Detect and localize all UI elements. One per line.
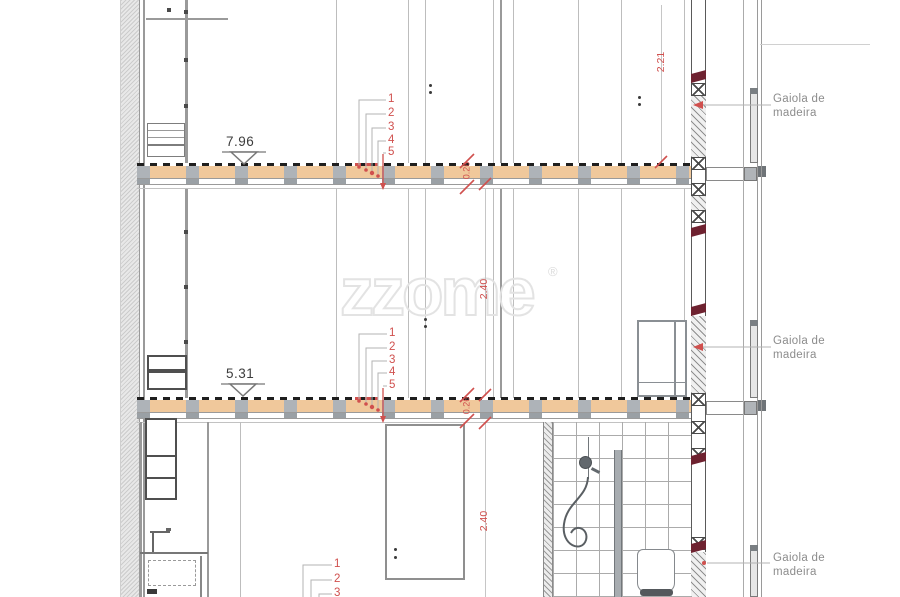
door-leaf-line	[425, 0, 426, 163]
right-wall-line	[761, 0, 762, 597]
column-joint-x	[691, 393, 706, 406]
gaiola-label-line2: madeira	[773, 106, 825, 120]
right-beam-block-upper	[744, 167, 757, 181]
callout-upper-3: 3	[388, 122, 394, 133]
partition-wall	[500, 0, 502, 163]
cabinet-shelf-line	[146, 477, 176, 479]
level-label-upper: 7.96	[226, 134, 254, 149]
slab-red-mark	[355, 163, 378, 166]
column-joint-x	[691, 448, 706, 461]
wall-board	[750, 88, 758, 163]
column-hatch	[691, 96, 706, 157]
wall-tick	[184, 230, 188, 234]
partition-line	[336, 188, 337, 398]
right-wall-line	[743, 0, 744, 597]
bottom-partition-line	[240, 422, 241, 597]
right-beam-block-lower	[744, 401, 757, 415]
bathroom-wall-hatch	[543, 422, 553, 597]
faucet-riser	[152, 531, 154, 552]
toilet-seat	[640, 589, 673, 596]
callout-lower-4: 4	[389, 367, 395, 378]
bottom-partition	[207, 422, 209, 597]
slab-ceiling-line	[137, 184, 691, 189]
door-handle-dot	[638, 96, 641, 99]
bottom-wall-line	[140, 422, 142, 597]
wall-tick	[184, 10, 188, 14]
door-handle-dot	[638, 103, 641, 106]
gaiola-label-line2: madeira	[773, 565, 825, 579]
gaiola-label-top: Gaiola de madeira	[773, 92, 825, 120]
wall-tick	[184, 340, 188, 344]
partition-line	[513, 0, 514, 163]
column-joint-x	[691, 157, 706, 170]
cabinet-side	[200, 556, 202, 597]
wall-board-cap	[750, 88, 758, 94]
column-hatch	[691, 552, 706, 597]
shower-panel	[614, 450, 622, 597]
partition-line	[336, 0, 337, 163]
gaiola-label-line1: Gaiola de	[773, 334, 825, 348]
watermark: zzome	[340, 253, 533, 331]
callout-upper-4: 4	[388, 135, 394, 146]
partition-line	[408, 0, 409, 163]
dim-2-40-bottom: 2.40	[478, 506, 490, 536]
left-wall-tie-beam	[146, 18, 228, 20]
shelf-upper	[147, 123, 185, 145]
door-handle-dot	[429, 91, 432, 94]
gaiola-label-line1: Gaiola de	[773, 92, 825, 106]
floor-slab-upper	[137, 163, 691, 189]
gaiola-label-line2: madeira	[773, 348, 825, 362]
wall-board-cap	[750, 320, 758, 326]
callout-bottom-2: 2	[334, 574, 340, 585]
column-hatch	[691, 196, 706, 210]
door	[385, 424, 465, 580]
gaiola-label-line1: Gaiola de	[773, 551, 825, 565]
dim-2-21: 2.21	[655, 47, 667, 77]
wall-tick	[167, 8, 171, 12]
wall-tick	[184, 285, 188, 289]
wall-board	[750, 545, 758, 597]
callout-bottom-1: 1	[334, 559, 340, 570]
floor-slab-lower	[137, 397, 691, 423]
wall-tick	[184, 104, 188, 108]
plinth-mark	[147, 589, 157, 594]
faucet-handle	[166, 528, 171, 531]
partition-line	[493, 0, 494, 163]
partition-line	[621, 0, 622, 163]
window-mullion	[674, 322, 676, 395]
upper-level-line	[760, 44, 870, 45]
callout-lower-1: 1	[389, 328, 395, 339]
partition-line	[578, 0, 579, 163]
column-joint-x	[691, 210, 706, 223]
dim-2-40-mid: 2.40	[478, 274, 490, 304]
shelf-line	[148, 130, 184, 131]
watermark-registered-mark: ®	[548, 264, 558, 279]
partition-line	[621, 188, 622, 398]
callout-lower-3: 3	[389, 355, 395, 366]
gaiola-label-bottom: Gaiola de madeira	[773, 551, 825, 579]
wall-board	[750, 320, 758, 398]
callout-bottom-3: 3	[334, 588, 340, 597]
cabinet-shelf-line	[146, 455, 176, 457]
slab-joists	[137, 166, 691, 178]
shelf-line	[148, 137, 184, 138]
column-hatch	[691, 316, 706, 393]
slab-joists	[137, 400, 691, 412]
column-face-line	[684, 0, 685, 163]
gaiola-label-middle: Gaiola de madeira	[773, 334, 825, 362]
section-drawing: zzome ®	[0, 0, 900, 597]
dim-line-2-21	[661, 5, 662, 163]
left-wall-inner-line	[143, 0, 145, 597]
drawer-dashed-outline	[148, 560, 196, 586]
counter-top	[140, 552, 208, 554]
callout-upper-1: 1	[388, 94, 394, 105]
shelf-upper-base	[147, 145, 185, 157]
window-frame	[637, 320, 687, 397]
shower-head-icon	[579, 456, 592, 469]
callout-lower-5: 5	[389, 380, 395, 391]
shelf-middle-bottom	[147, 371, 187, 390]
dim-0-26-lower: 0.26	[462, 391, 473, 421]
partition-line	[578, 188, 579, 398]
window-sill-line	[639, 382, 685, 383]
left-wall-face-upper	[185, 0, 188, 163]
tall-cabinet	[145, 418, 177, 500]
callout-lower-2: 2	[389, 342, 395, 353]
left-wall-hatch	[120, 0, 140, 597]
slab-red-mark	[355, 397, 378, 400]
toilet-icon	[637, 549, 675, 593]
level-label-lower: 5.31	[226, 366, 254, 381]
door-handle-dot	[394, 548, 397, 551]
door-handle-dot	[394, 556, 397, 559]
column-joint-x	[691, 537, 706, 550]
column-joint-x	[691, 83, 706, 96]
dim-0-26-upper: 0.26	[462, 156, 473, 186]
shelf-middle-top	[147, 355, 187, 371]
column-joint-x	[691, 183, 706, 196]
wall-board-cap	[750, 545, 758, 551]
callout-upper-5: 5	[388, 147, 394, 158]
wall-tick	[184, 58, 188, 62]
door-handle-dot	[429, 84, 432, 87]
callout-upper-2: 2	[388, 108, 394, 119]
column-joint-x	[691, 421, 706, 434]
